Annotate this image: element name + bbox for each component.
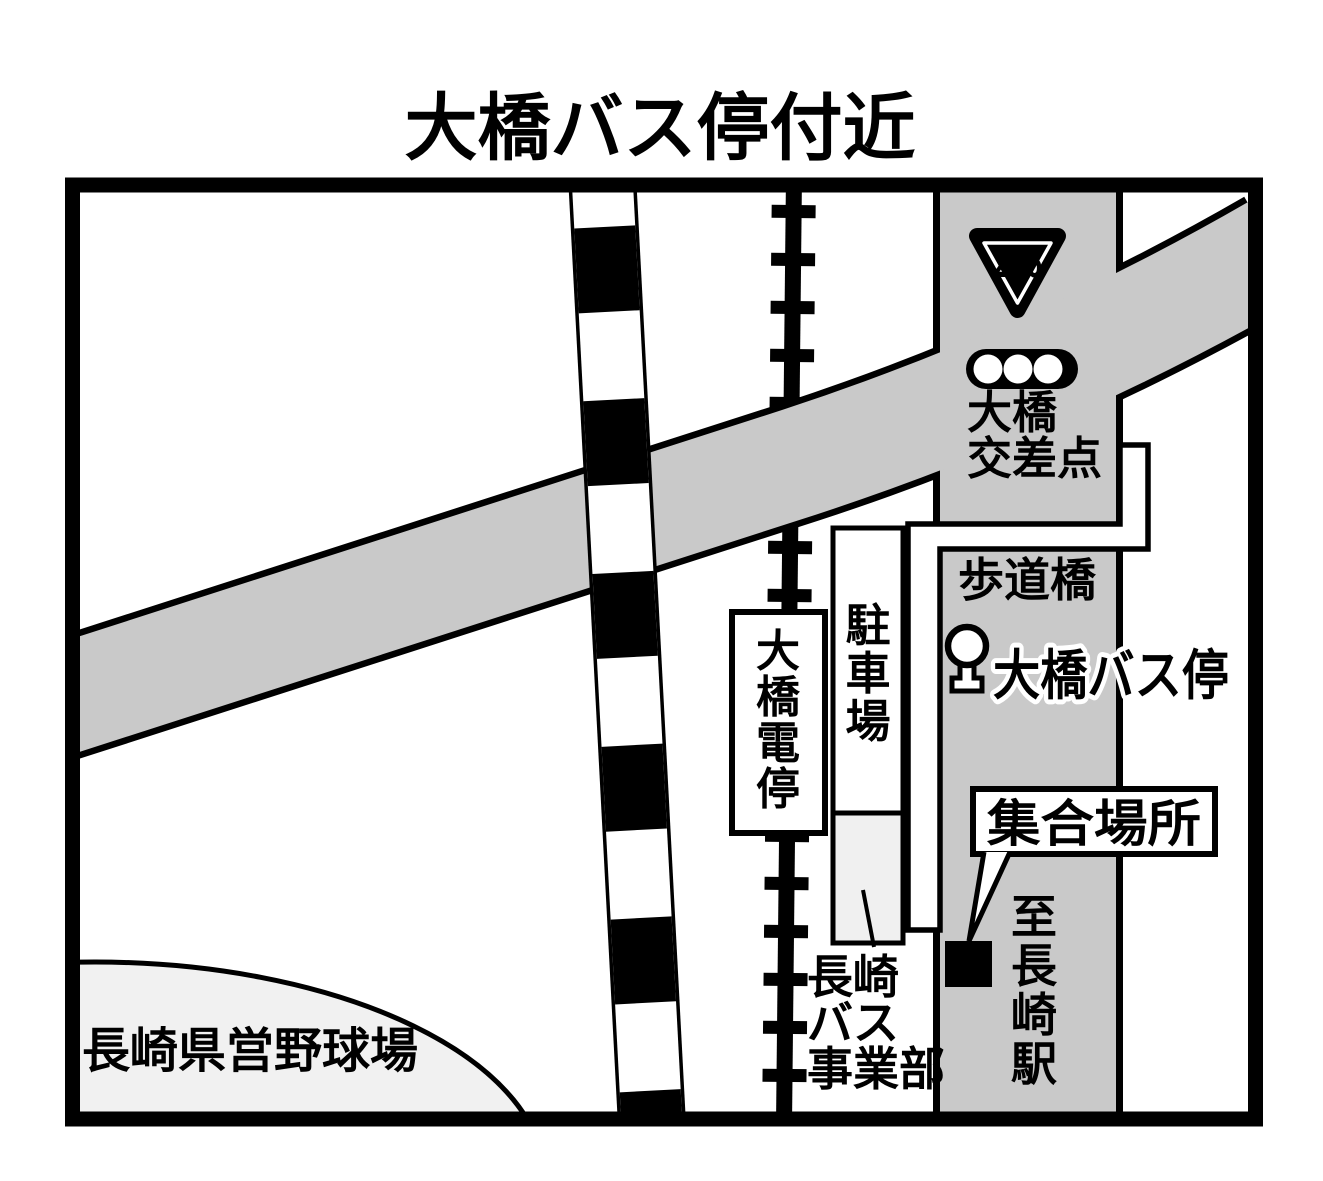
traffic-light-icon (966, 349, 1078, 389)
pedestrian-bridge-label: 歩道橋 (958, 553, 1096, 607)
tram-stop-label: 大橋電停 (756, 626, 800, 815)
traffic-light-lamp (1004, 355, 1033, 384)
railway-line (602, 175, 652, 1125)
to-station-label: 至長崎駅 (1011, 890, 1058, 1091)
bus-stop-label: 大橋バス停 (993, 644, 1229, 707)
map-canvas: 206 大橋 交差点 歩道橋 大橋バス停 大橋電停 駐車場 至長崎駅 集合場所 … (0, 170, 1275, 1181)
meeting-point-square (945, 941, 992, 987)
bus-division-label-line3: 事業部 (807, 1042, 945, 1096)
traffic-light-lamp (1034, 355, 1063, 384)
map-page: 大橋バス停付近 (0, 0, 1323, 1181)
bus-stop-sign-head (948, 627, 986, 665)
traffic-light-lamp (974, 355, 1003, 384)
page-title: 大橋バス停付近 (405, 86, 916, 171)
parking-label: 駐車場 (845, 599, 890, 748)
route-map: 大橋バス停付近 (0, 0, 1323, 1181)
route-badge-number: 206 (993, 242, 1043, 286)
baseball-stadium-label: 長崎県営野球場 (82, 1023, 418, 1079)
intersection-label-line2: 交差点 (967, 432, 1102, 485)
meeting-place-label: 集合場所 (986, 795, 1201, 853)
bus-stop-sign-icon (948, 627, 986, 691)
